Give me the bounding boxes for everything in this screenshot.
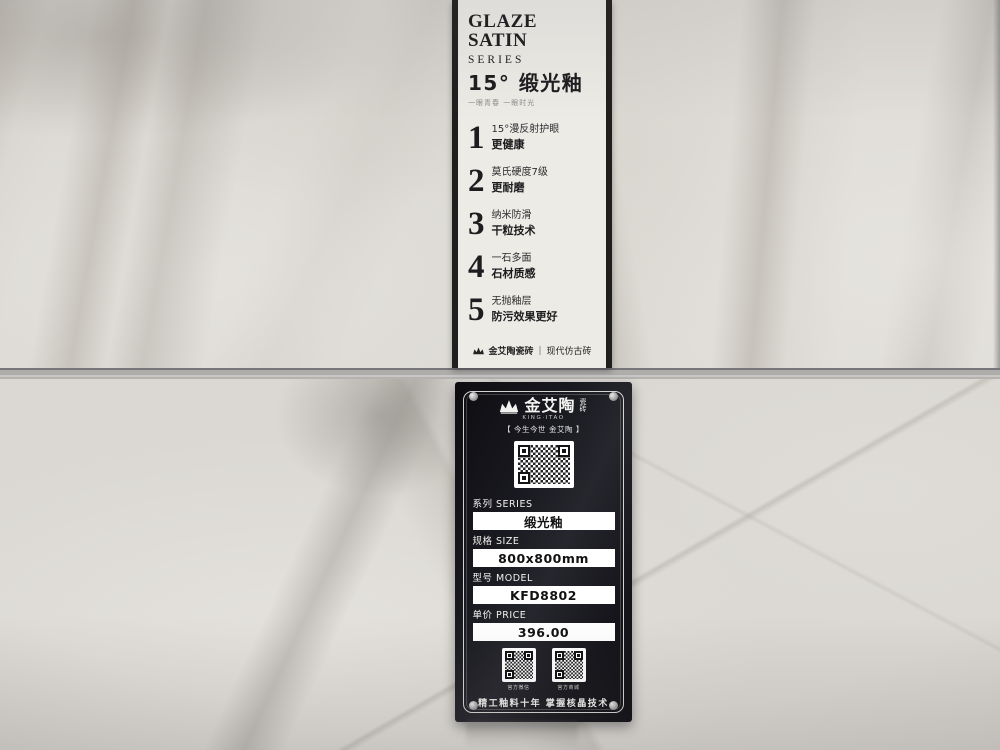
- poster-footer: 金艾陶瓷砖 | 现代仿古砖: [468, 344, 596, 360]
- poster-tagline: 一眼青春 一眼时光: [468, 98, 596, 108]
- model-value: KFD8802: [473, 586, 615, 604]
- size-value: 800x800mm: [473, 549, 615, 567]
- qr-code-main: [514, 441, 574, 488]
- price-field: 单价 PRICE 396.00: [473, 607, 615, 641]
- price-label: 单价 PRICE: [473, 607, 615, 621]
- feature-line2: 干粒技术: [492, 224, 536, 237]
- feature-line2: 石材质感: [492, 267, 536, 280]
- secondary-qr-codes: 官方微信 官方商城: [502, 648, 586, 691]
- crown-icon: [498, 399, 520, 414]
- feature-line2: 防污效果更好: [492, 310, 558, 323]
- feature-item-2: 2 莫氏硬度7级 更耐磨: [468, 167, 596, 196]
- qr-finder-icon: [505, 670, 514, 679]
- series-label: 系列 SERIES: [473, 496, 615, 510]
- qr-finder-icon: [574, 651, 583, 660]
- qr-left-column: 官方微信: [502, 648, 536, 691]
- model-field: 型号 MODEL KFD8802: [473, 570, 615, 604]
- qr-finder-icon: [518, 472, 530, 484]
- poster-footer-divider: |: [538, 346, 541, 356]
- product-fields: 系列 SERIES 缎光釉 规格 SIZE 800x800mm 型号 MODEL…: [473, 493, 615, 641]
- feature-item-4: 4 一石多面 石材质感: [468, 253, 596, 282]
- plaque-reflection: [466, 722, 578, 748]
- horizontal-grout-line: [0, 368, 1000, 379]
- feature-item-1: 1 15°漫反射护眼 更健康: [468, 124, 596, 153]
- qr-code-right: [552, 648, 586, 682]
- size-label: 规格 SIZE: [473, 533, 615, 547]
- brand-name-en: KING·ITAO: [522, 415, 564, 421]
- product-info-plaque: 金艾陶 瓷砖 KING·ITAO 【 今生今世 金艾陶 】 系列 SERIES …: [455, 382, 632, 722]
- feature-line1: 莫氏硬度7级: [492, 167, 548, 180]
- series-poster: GLAZE SATIN SERIES 15° 缎光釉 一眼青春 一眼时光 1 1…: [452, 0, 612, 368]
- qr-finder-icon: [555, 670, 564, 679]
- poster-title-en: GLAZE SATIN: [468, 12, 596, 50]
- poster-subtitle-en: SERIES: [468, 54, 596, 66]
- series-field: 系列 SERIES 缎光釉: [473, 496, 615, 530]
- plaque-content: 金艾陶 瓷砖 KING·ITAO 【 今生今世 金艾陶 】 系列 SERIES …: [472, 395, 615, 709]
- feature-number: 5: [468, 296, 485, 325]
- feature-line1: 一石多面: [492, 253, 536, 266]
- model-label: 型号 MODEL: [473, 570, 615, 584]
- feature-line1: 无抛釉层: [492, 296, 558, 309]
- qr-right-column: 官方商城: [552, 648, 586, 691]
- feature-number: 4: [468, 253, 485, 282]
- feature-line1: 15°漫反射护眼: [492, 124, 560, 137]
- qr-left-caption: 官方微信: [507, 684, 529, 691]
- feature-item-3: 3 纳米防滑 干粒技术: [468, 210, 596, 239]
- poster-footer-brand: 金艾陶瓷砖: [488, 344, 533, 357]
- qr-finder-icon: [518, 445, 530, 457]
- poster-title-cn: 15° 缎光釉: [468, 73, 596, 93]
- feature-number: 1: [468, 124, 485, 153]
- feature-line1: 纳米防滑: [492, 210, 536, 223]
- price-value: 396.00: [473, 623, 615, 641]
- plaque-footer-slogan: 精工釉料十年 掌握核晶技术: [478, 696, 609, 709]
- brand-name: 金艾陶: [524, 398, 575, 414]
- series-value: 缎光釉: [473, 512, 615, 530]
- feature-list: 1 15°漫反射护眼 更健康 2 莫氏硬度7级 更耐磨 3 纳米防滑 干粒技术 …: [468, 124, 596, 344]
- poster-footer-tag: 现代仿古砖: [547, 344, 592, 357]
- qr-finder-icon: [555, 651, 564, 660]
- feature-number: 3: [468, 210, 485, 239]
- qr-finder-icon: [558, 445, 570, 457]
- feature-line2: 更健康: [492, 138, 560, 151]
- marble-tile-top-left: [0, 0, 452, 368]
- crown-icon: [472, 346, 485, 356]
- feature-item-5: 5 无抛釉层 防污效果更好: [468, 296, 596, 325]
- feature-number: 2: [468, 167, 485, 196]
- size-field: 规格 SIZE 800x800mm: [473, 533, 615, 567]
- brand-slogan: 【 今生今世 金艾陶 】: [503, 424, 584, 435]
- qr-code-left: [502, 648, 536, 682]
- qr-right-caption: 官方商城: [557, 684, 579, 691]
- qr-finder-icon: [505, 651, 514, 660]
- feature-line2: 更耐磨: [492, 181, 548, 194]
- right-tile-seam: [993, 0, 1000, 368]
- qr-finder-icon: [524, 651, 533, 660]
- brand-name-small: 瓷砖: [580, 399, 589, 414]
- brand-logo: 金艾陶 瓷砖: [498, 398, 588, 414]
